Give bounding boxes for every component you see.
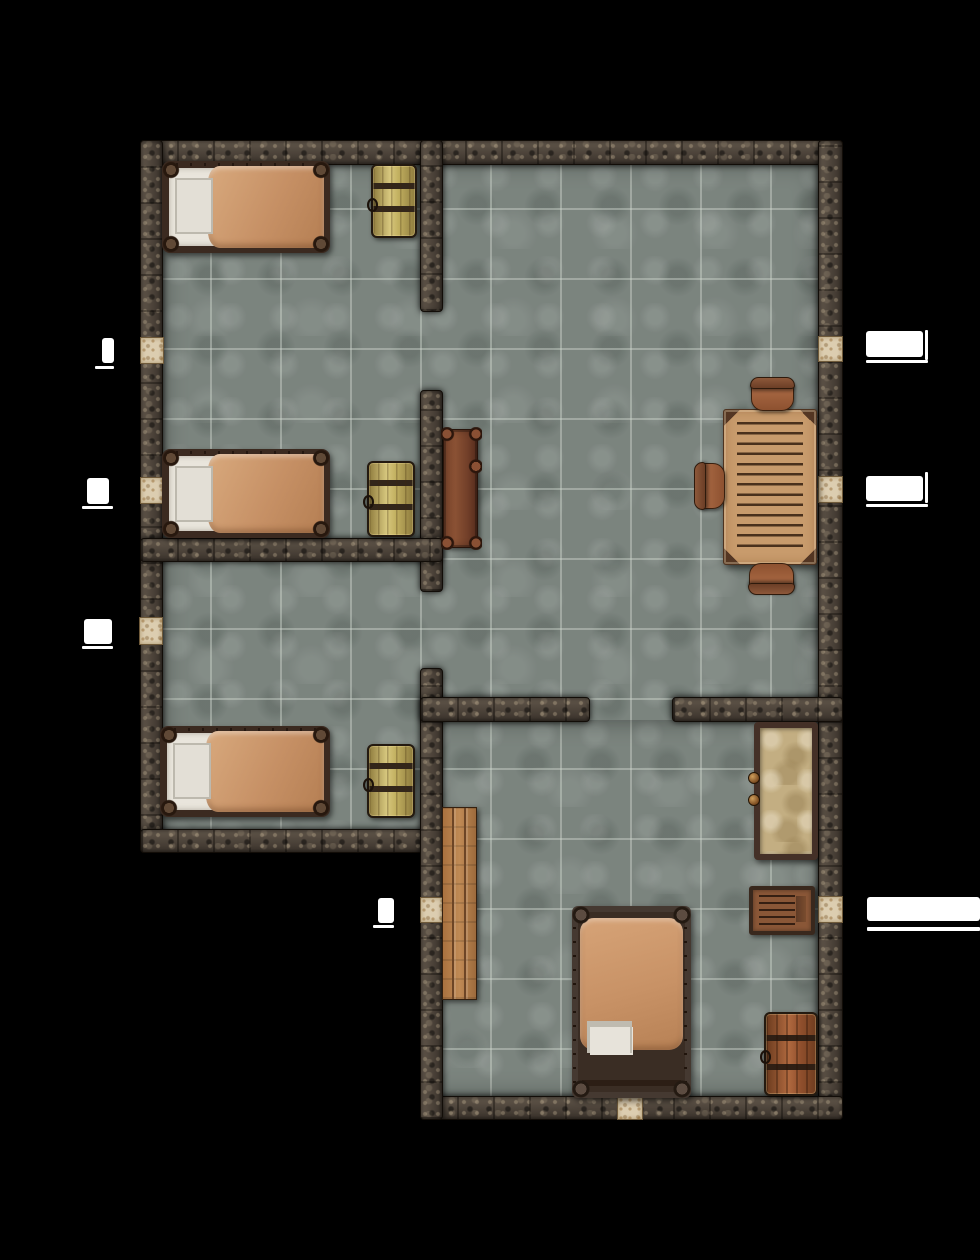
marker-east-1-jamb	[925, 330, 928, 360]
marker-west-3	[84, 619, 112, 644]
wall-stub-north	[420, 140, 443, 312]
single-bed-2	[162, 449, 330, 538]
marker-south-west-line	[373, 925, 394, 928]
marker-east-2-line	[866, 504, 928, 507]
marker-west-3-line	[82, 646, 113, 649]
door-west-1	[140, 337, 164, 364]
marker-south-west	[378, 898, 394, 923]
barrel-1	[371, 164, 417, 238]
dining-table	[723, 409, 817, 565]
barrel-4	[764, 1012, 818, 1096]
chair-north	[751, 380, 794, 411]
battle-map	[0, 0, 980, 1260]
wall-bedroom-divider	[140, 538, 443, 562]
marker-east-1-line	[866, 360, 928, 363]
door-south-wing-east	[818, 896, 843, 923]
marker-south-east-line	[867, 927, 980, 931]
wall-south-wing-west	[420, 668, 443, 1120]
door-west-2	[140, 477, 164, 504]
marker-east-1	[866, 331, 923, 357]
door-east-2	[818, 476, 843, 503]
single-bed-1	[162, 161, 330, 253]
door-south	[617, 1096, 643, 1120]
side-table	[443, 429, 478, 548]
marker-west-2	[87, 478, 109, 504]
chair-west	[697, 463, 725, 509]
marker-west-2-line	[82, 506, 113, 509]
cabinet	[754, 722, 818, 860]
door-west-3	[139, 617, 163, 645]
barrel-2	[367, 461, 415, 537]
marker-west-1-line	[95, 366, 114, 369]
marker-east-2	[866, 476, 923, 501]
wall-hall-south-east	[672, 697, 843, 722]
door-east-1	[818, 336, 843, 362]
door-south-wing-west	[420, 897, 443, 923]
marker-east-2-jamb	[925, 472, 928, 503]
marker-south-east	[867, 897, 980, 921]
bench	[442, 807, 477, 1000]
wall-east	[818, 140, 843, 1120]
double-bed	[572, 906, 691, 1098]
marker-west-1	[102, 338, 114, 363]
chair-south	[749, 563, 794, 592]
barrel-3	[367, 744, 415, 818]
dresser	[749, 886, 815, 935]
wall-hall-south-west	[420, 697, 590, 722]
wall-west-wing-south	[140, 829, 443, 853]
single-bed-3	[160, 726, 330, 817]
